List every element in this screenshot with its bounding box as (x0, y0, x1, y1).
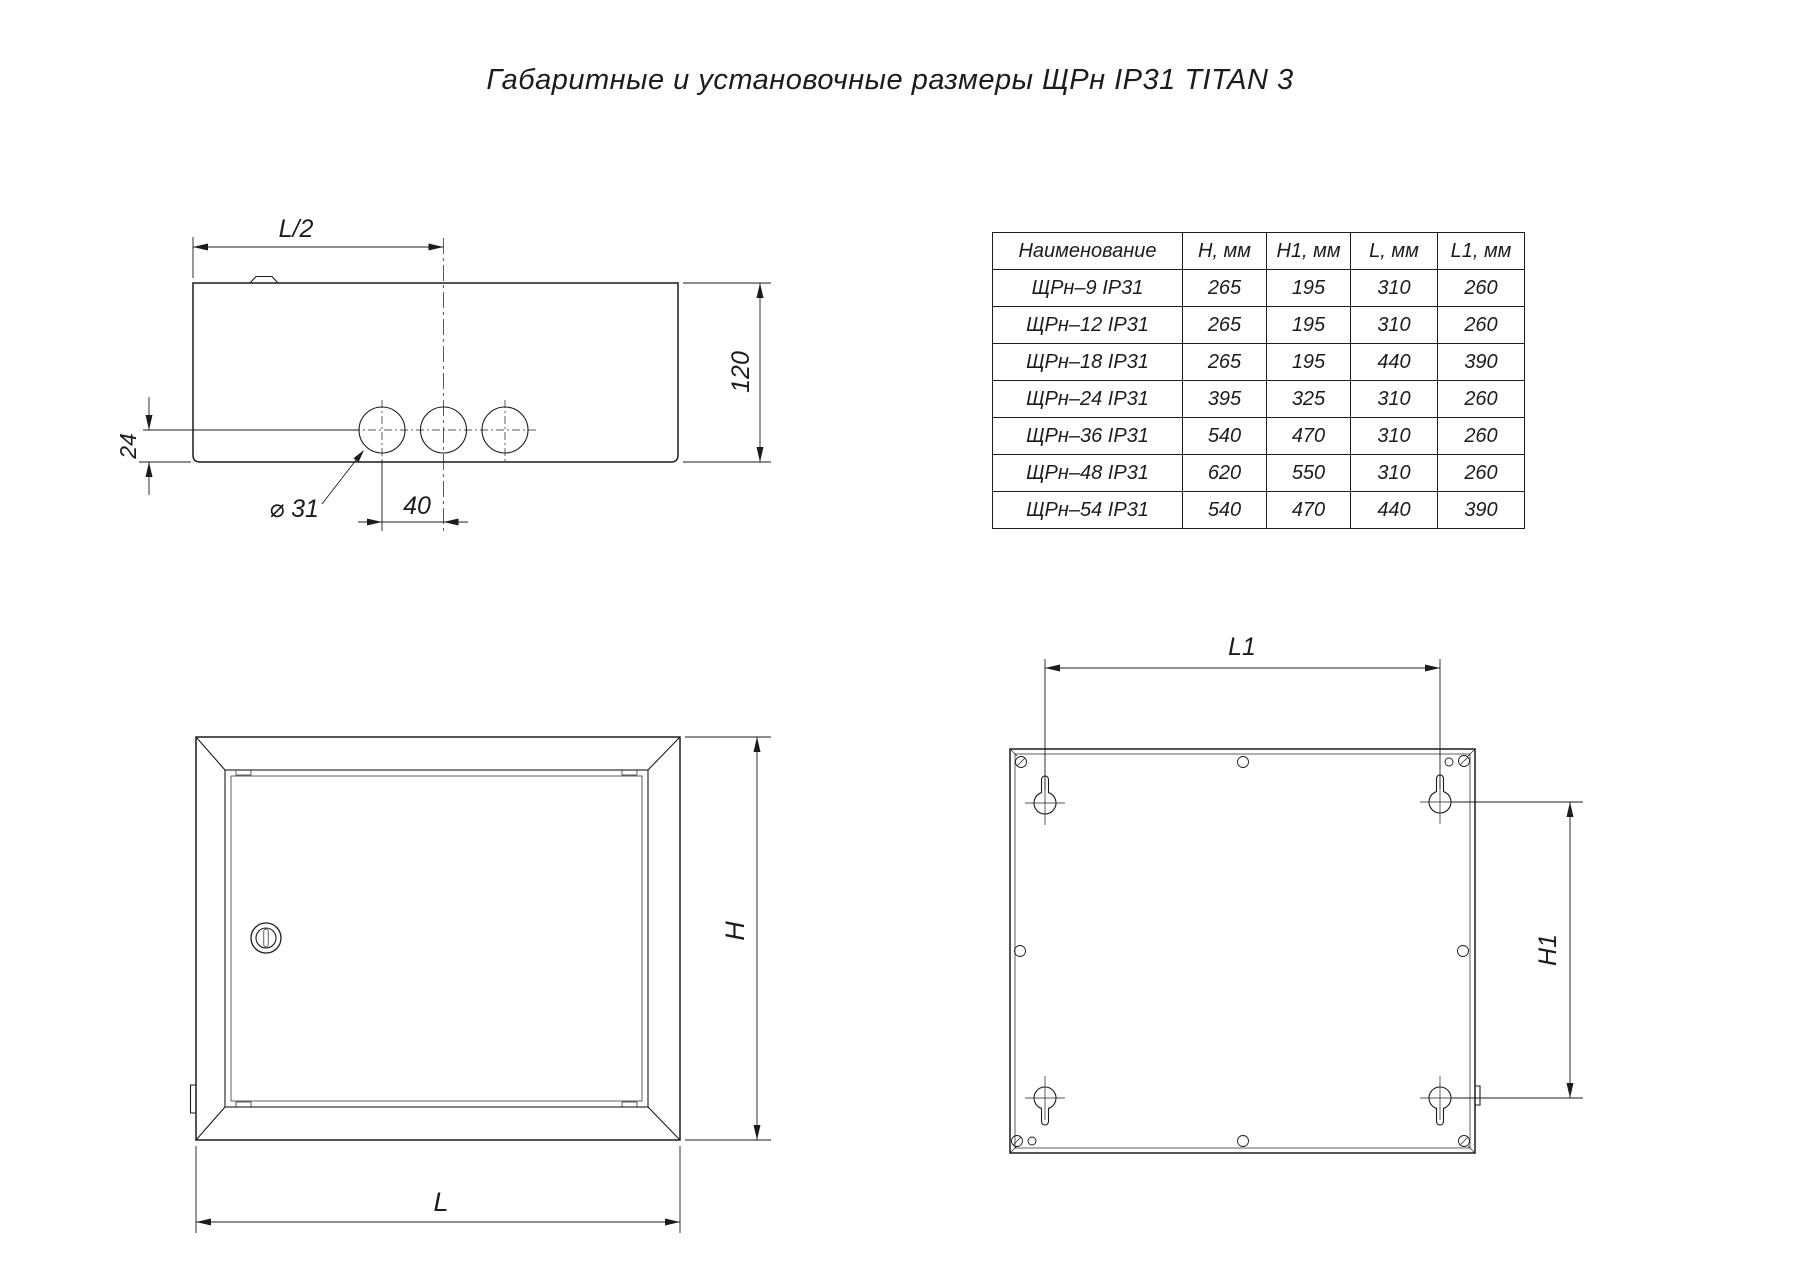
cell-h1: 195 (1267, 344, 1351, 381)
cell-l: 310 (1351, 418, 1438, 455)
top-view: L/2 120 24 ⌀ 31 40 (115, 215, 771, 531)
dimensions-table: Наименование H, мм H1, мм L, мм L1, мм Щ… (992, 232, 1525, 529)
table-row: ЩРн–48 IP31 620 550 310 260 (993, 455, 1525, 492)
col-header-h: H, мм (1183, 233, 1267, 270)
cell-l: 310 (1351, 307, 1438, 344)
front-view-dimension-lines (196, 737, 771, 1233)
cell-l1: 260 (1438, 418, 1525, 455)
dim-label-half-width: L/2 (279, 215, 314, 243)
dimension-arrows (146, 244, 764, 526)
dim-label-depth: 120 (727, 351, 755, 393)
cell-l: 310 (1351, 381, 1438, 418)
knockout-hole (482, 407, 528, 453)
col-header-name: Наименование (993, 233, 1183, 270)
panel-hole (1238, 757, 1249, 768)
dim-label-hole-offset: 24 (115, 433, 141, 460)
mounting-keyholes (1025, 775, 1460, 1125)
cell-h: 540 (1183, 492, 1267, 529)
cell-name: ЩРн–9 IP31 (993, 270, 1183, 307)
dim-label-mount-width: L1 (1228, 633, 1256, 661)
back-view: L1 H1 (1010, 633, 1583, 1153)
door-hinge-tabs (236, 770, 637, 1107)
hole-centerlines (352, 400, 536, 461)
cell-l1: 260 (1438, 270, 1525, 307)
table-row: ЩРн–9 IP31 265 195 310 260 (993, 270, 1525, 307)
panel-holes (1012, 756, 1470, 1147)
cell-l: 310 (1351, 455, 1438, 492)
back-view-dimension-lines (1045, 659, 1583, 1098)
front-view-frame (196, 737, 680, 1140)
table-row: ЩРн–12 IP31 265 195 310 260 (993, 307, 1525, 344)
col-header-l1: L1, мм (1438, 233, 1525, 270)
cell-l1: 390 (1438, 492, 1525, 529)
cell-name: ЩРн–24 IP31 (993, 381, 1183, 418)
dimension-arrows (1045, 665, 1574, 1099)
table-row: ЩРн–54 IP31 540 470 440 390 (993, 492, 1525, 529)
cell-h1: 470 (1267, 492, 1351, 529)
panel-hole-small (1445, 758, 1453, 766)
cell-h1: 325 (1267, 381, 1351, 418)
dim-label-hole-diameter: ⌀ 31 (269, 495, 319, 523)
table-row: ЩРн–24 IP31 395 325 310 260 (993, 381, 1525, 418)
col-header-l: L, мм (1351, 233, 1438, 270)
front-view: H L (191, 737, 772, 1233)
back-panel-fold-line (1015, 754, 1470, 1148)
back-panel (1010, 749, 1475, 1153)
cell-l1: 260 (1438, 307, 1525, 344)
table-row: ЩРн–36 IP31 540 470 310 260 (993, 418, 1525, 455)
col-header-h1: H1, мм (1267, 233, 1351, 270)
cell-h1: 195 (1267, 307, 1351, 344)
technical-drawing: L/2 120 24 ⌀ 31 40 (0, 0, 1809, 1281)
cell-name: ЩРн–48 IP31 (993, 455, 1183, 492)
cell-h1: 470 (1267, 418, 1351, 455)
cell-l: 440 (1351, 344, 1438, 381)
cell-l: 310 (1351, 270, 1438, 307)
cell-l1: 260 (1438, 381, 1525, 418)
cell-name: ЩРн–54 IP31 (993, 492, 1183, 529)
table-header-row: Наименование H, мм H1, мм L, мм L1, мм (993, 233, 1525, 270)
corner-screws (1012, 756, 1470, 1147)
front-view-door (225, 770, 648, 1107)
dim-label-width: L (433, 1187, 448, 1217)
top-view-lock-bump (250, 277, 278, 284)
cell-name: ЩРн–18 IP31 (993, 344, 1183, 381)
cell-h: 620 (1183, 455, 1267, 492)
frame-bevel-lines (196, 737, 680, 1140)
panel-corner-seams (1010, 749, 1475, 1153)
cell-l1: 260 (1438, 455, 1525, 492)
cell-l: 440 (1351, 492, 1438, 529)
table-row: ЩРн–18 IP31 265 195 440 390 (993, 344, 1525, 381)
panel-hole (1458, 946, 1469, 957)
door-lock (251, 923, 281, 953)
dim-label-hole-spacing: 40 (403, 492, 431, 520)
panel-hole-small (1028, 1137, 1036, 1145)
cell-h: 265 (1183, 270, 1267, 307)
front-view-door-face (231, 776, 642, 1101)
knockout-hole (359, 407, 405, 453)
cell-l1: 390 (1438, 344, 1525, 381)
panel-hole (1238, 1136, 1249, 1147)
top-view-body (193, 283, 678, 462)
frame-left-notch (191, 1085, 197, 1113)
cell-name: ЩРн–36 IP31 (993, 418, 1183, 455)
cell-h: 540 (1183, 418, 1267, 455)
cell-h: 265 (1183, 307, 1267, 344)
drawing-sheet: Габаритные и установочные размеры ЩРн IP… (0, 0, 1809, 1281)
cell-h1: 195 (1267, 270, 1351, 307)
keyhole-centerlines (1025, 780, 1460, 1120)
dim-label-mount-height: H1 (1534, 934, 1562, 966)
cell-name: ЩРн–12 IP31 (993, 307, 1183, 344)
dim-label-height: H (720, 921, 750, 941)
cell-h: 395 (1183, 381, 1267, 418)
top-view-dimension-lines (139, 237, 771, 531)
dimension-arrows (196, 737, 761, 1226)
cell-h: 265 (1183, 344, 1267, 381)
cell-h1: 550 (1267, 455, 1351, 492)
panel-hole (1015, 946, 1026, 957)
